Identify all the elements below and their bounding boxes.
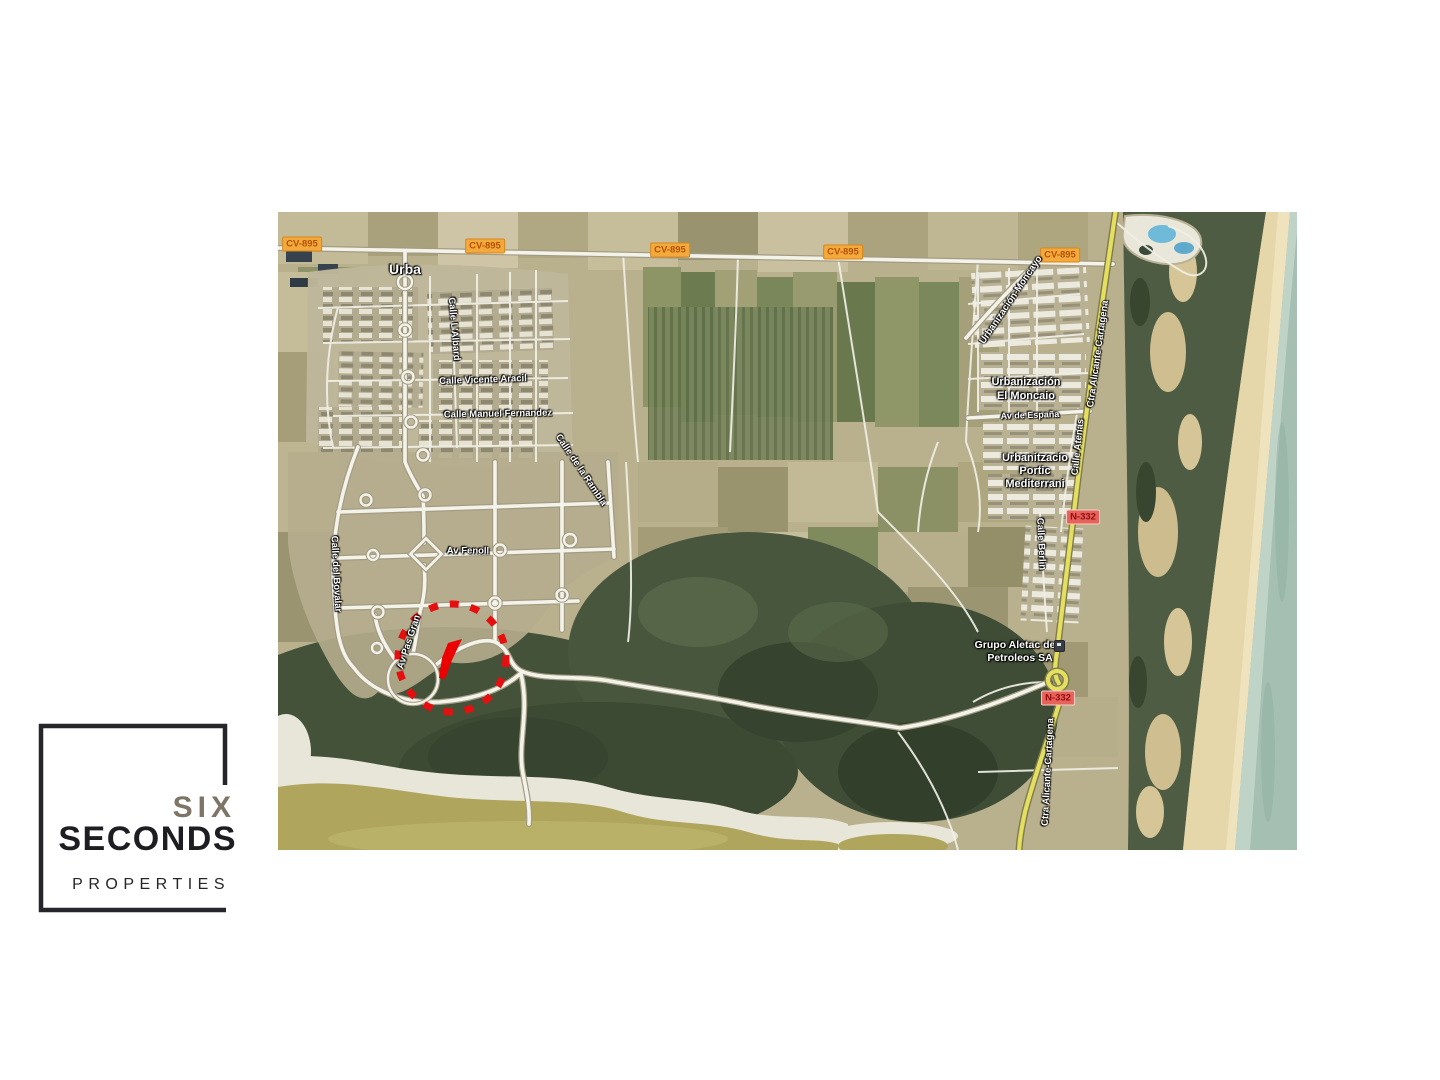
logo-word-seconds: SECONDS xyxy=(58,820,237,859)
logo-word-properties: PROPERTIES xyxy=(72,876,230,894)
six-seconds-logo: SIX SECONDS PROPERTIES xyxy=(38,723,228,913)
coastline xyxy=(1123,212,1297,850)
page: CV-895 CV-895 CV-895 CV-895 CV-895 N-332… xyxy=(0,0,1440,1080)
satellite-map[interactable]: CV-895 CV-895 CV-895 CV-895 CV-895 N-332… xyxy=(278,212,1297,850)
map-terrain xyxy=(278,212,1297,850)
